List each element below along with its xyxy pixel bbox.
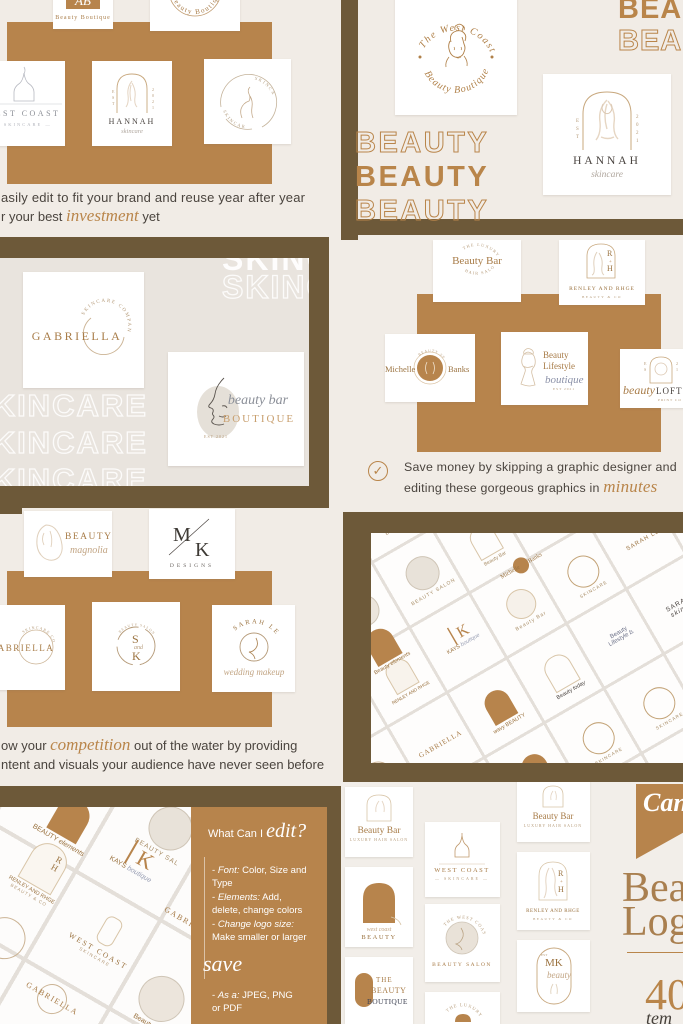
svg-text:K: K xyxy=(195,539,210,561)
svg-text:0: 0 xyxy=(152,93,154,98)
svg-text:GABRIELLA: GABRIELLA xyxy=(32,329,123,343)
svg-text:PRINT CO: PRINT CO xyxy=(658,398,682,402)
svg-text:BOUTIQUE: BOUTIQUE xyxy=(223,413,295,425)
svg-text:EST: EST xyxy=(541,953,548,957)
svg-text:SARAH LEE: SARAH LEE xyxy=(212,605,281,637)
svg-text:S: S xyxy=(576,127,579,132)
svg-text:beauty: beauty xyxy=(547,970,571,980)
svg-text:BEAUTY & CO: BEAUTY & CO xyxy=(582,295,622,299)
svg-text:2: 2 xyxy=(152,99,154,104)
svg-text:Beauty Boutique: Beauty Boutique xyxy=(422,66,492,95)
svg-text:GABRIELLA: GABRIELLA xyxy=(0,643,54,653)
svg-text:LOFT: LOFT xyxy=(656,386,683,396)
svg-text:2: 2 xyxy=(636,131,639,136)
svg-text:R: R xyxy=(558,869,564,878)
svg-text:THE: THE xyxy=(376,976,393,984)
svg-text:boutique: boutique xyxy=(545,374,584,386)
svg-text:BEAUTY: BEAUTY xyxy=(361,934,396,941)
svg-text:BEAUTY SPA: BEAUTY SPA xyxy=(385,334,446,360)
svg-text:E: E xyxy=(576,119,579,124)
svg-text:SKINCARE CO: SKINCARE CO xyxy=(21,625,57,644)
svg-text:RENLEY AND RHGE: RENLEY AND RHGE xyxy=(569,286,635,292)
svg-text:1: 1 xyxy=(152,105,154,110)
svg-text:2: 2 xyxy=(636,115,639,120)
svg-text:RENLEY AND RHGE: RENLEY AND RHGE xyxy=(526,909,580,914)
svg-text:H: H xyxy=(558,885,564,894)
svg-text:E: E xyxy=(644,361,647,366)
svg-text:wedding makeup: wedding makeup xyxy=(224,667,285,677)
svg-text:EST 2021: EST 2021 xyxy=(553,387,575,391)
svg-text:beauty bar: beauty bar xyxy=(228,393,289,408)
svg-text:BEAUTY: BEAUTY xyxy=(371,986,406,995)
svg-text:SKINCARE COMPANY: SKINCARE COMPANY xyxy=(23,272,131,333)
svg-text:1: 1 xyxy=(636,139,639,144)
svg-text:Beauty Boutique: Beauty Boutique xyxy=(170,0,221,16)
svg-text:E: E xyxy=(112,89,115,94)
svg-text:S: S xyxy=(644,367,646,372)
svg-text:The West Coast: The West Coast xyxy=(417,23,498,56)
svg-text:MK: MK xyxy=(545,957,563,969)
svg-text:Banks: Banks xyxy=(448,364,469,374)
svg-text:beauty: beauty xyxy=(623,383,656,397)
svg-text:Beauty Boutique: Beauty Boutique xyxy=(55,15,111,21)
svg-text:LUXURY HAIR SALON: LUXURY HAIR SALON xyxy=(350,837,408,842)
svg-text:WEST COAST: WEST COAST xyxy=(434,867,490,874)
svg-text:BEAUTY SALON SPA: BEAUTY SALON SPA xyxy=(92,602,157,637)
svg-text:Michelle: Michelle xyxy=(385,364,415,374)
svg-text:M: M xyxy=(173,524,191,546)
svg-text:BEAUTY & CO: BEAUTY & CO xyxy=(533,917,573,921)
svg-text:T: T xyxy=(112,101,115,106)
svg-text:— SKINCARE —: — SKINCARE — xyxy=(434,876,489,881)
svg-text:EST 2021: EST 2021 xyxy=(204,434,228,439)
svg-text:S: S xyxy=(132,632,139,646)
svg-text:Beauty Bar: Beauty Bar xyxy=(357,826,401,836)
svg-text:BEAUTY SALON: BEAUTY SALON xyxy=(432,962,492,968)
svg-text:H: H xyxy=(607,264,613,273)
svg-text:0: 0 xyxy=(636,123,639,128)
svg-text:SKINCARE: SKINCARE xyxy=(204,59,277,96)
svg-text:DESIGNS: DESIGNS xyxy=(170,563,214,569)
svg-text:— SKINCARE —: — SKINCARE — xyxy=(0,122,52,127)
svg-text:T: T xyxy=(576,135,579,140)
svg-text:R: R xyxy=(607,249,613,258)
svg-text:HANNAH: HANNAH xyxy=(109,117,156,126)
svg-text:Beauty Bar: Beauty Bar xyxy=(452,255,502,267)
svg-text:skincare: skincare xyxy=(121,128,143,135)
svg-text:Beauty Bar: Beauty Bar xyxy=(533,811,574,821)
svg-text:AB: AB xyxy=(74,0,91,8)
svg-text:skincare: skincare xyxy=(591,170,623,180)
svg-text:WEST COAST: WEST COAST xyxy=(0,109,60,118)
svg-text:1: 1 xyxy=(676,367,678,372)
svg-text:2: 2 xyxy=(152,87,154,92)
svg-text:LUXURY HAIR SALON: LUXURY HAIR SALON xyxy=(524,823,582,828)
svg-text:BOUTIQUE: BOUTIQUE xyxy=(367,997,408,1006)
svg-text:K: K xyxy=(132,649,141,663)
svg-text:Lifestyle: Lifestyle xyxy=(543,361,575,371)
svg-text:SKINCARE: SKINCARE xyxy=(204,59,247,129)
svg-text:BEAUTY: BEAUTY xyxy=(65,532,112,542)
svg-text:HANNAH: HANNAH xyxy=(573,155,641,167)
svg-text:west coast: west coast xyxy=(367,927,392,933)
svg-text:S: S xyxy=(112,95,114,100)
svg-text:magnolia: magnolia xyxy=(70,545,108,556)
svg-text:Beauty: Beauty xyxy=(543,350,569,360)
svg-text:2: 2 xyxy=(676,361,678,366)
